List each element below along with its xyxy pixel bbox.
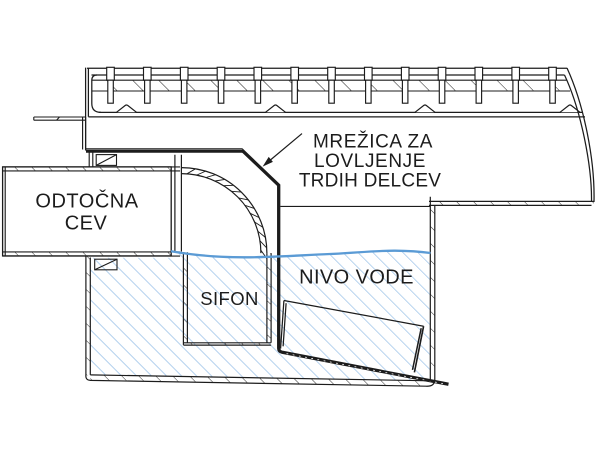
svg-text:MREŽICA ZA: MREŽICA ZA	[313, 130, 433, 152]
svg-text:SIFON: SIFON	[200, 288, 259, 309]
svg-text:TRDIH DELCEV: TRDIH DELCEV	[299, 170, 441, 191]
svg-text:ODTOČNA: ODTOČNA	[35, 190, 138, 213]
svg-text:NIVO VODE: NIVO VODE	[299, 267, 414, 289]
svg-text:LOVLJENJE: LOVLJENJE	[314, 151, 426, 172]
svg-text:CEV: CEV	[65, 213, 108, 235]
